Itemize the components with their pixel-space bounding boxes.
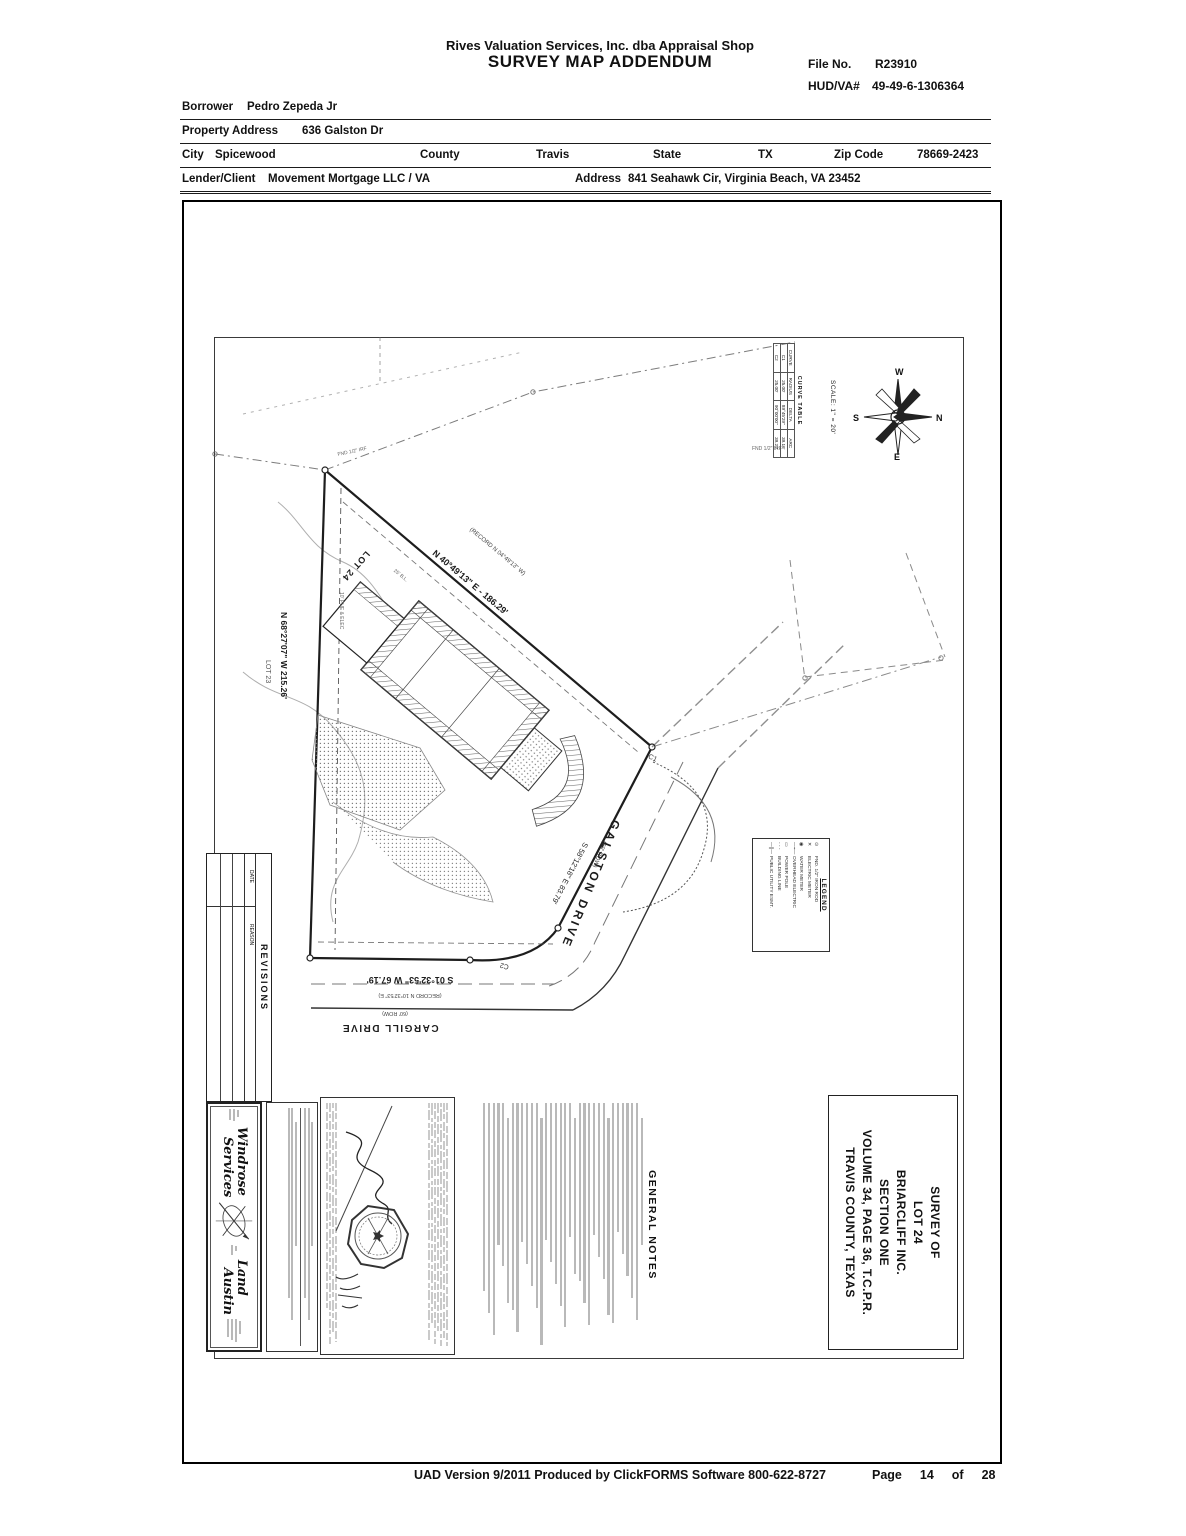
- curve-col-radius: RADIUS: [788, 372, 795, 401]
- legend-symbol: ◉: [797, 842, 804, 856]
- illegible-text-line: [507, 1118, 509, 1303]
- illegible-text-line: [295, 1122, 297, 1246]
- curve-c2-radius: 25.00': [774, 372, 781, 401]
- legend-label: POWER POLE: [783, 856, 788, 888]
- revisions-table: REVISIONS DATE REASON: [206, 853, 272, 1102]
- legend-label: ELECTRIC METER: [806, 856, 811, 898]
- illegible-text-line: [540, 1118, 542, 1345]
- borrower-value: Pedro Zepeda Jr: [247, 96, 337, 118]
- illegible-text-line: [622, 1103, 624, 1254]
- illegible-text-line: [569, 1103, 571, 1237]
- surveyor-signature: [346, 1132, 392, 1224]
- illegible-text-line: [626, 1103, 628, 1276]
- revisions-date-col: DATE: [245, 870, 256, 883]
- job-info-text: [304, 1108, 313, 1346]
- legend-symbol: —⌁—: [789, 842, 796, 856]
- illegible-text-line: [502, 1103, 504, 1266]
- illegible-text-line: [612, 1103, 614, 1323]
- surveyor-address-text: [228, 1109, 241, 1123]
- property-address-label: Property Address: [182, 120, 278, 142]
- footer-software-line: UAD Version 9/2011 Produced by ClickFORM…: [340, 1468, 900, 1482]
- illegible-text-line: [227, 1319, 229, 1337]
- legend-label: OVERHEAD ELECTRIC: [791, 856, 796, 908]
- footer-page-total: 28: [982, 1468, 996, 1482]
- illegible-text-line: [555, 1103, 557, 1284]
- hud-va-label: HUD/VA#: [808, 79, 860, 93]
- illegible-text-line: [512, 1103, 514, 1310]
- illegible-text-line: [235, 1319, 237, 1342]
- illegible-text-line: [521, 1103, 523, 1242]
- illegible-text-line: [291, 1108, 293, 1320]
- curve-c2-arc: 39.27': [774, 429, 781, 458]
- subject-info-form: Borrower Pedro Zepeda Jr Property Addres…: [180, 96, 991, 194]
- revisions-reason-col: REASON: [245, 924, 256, 945]
- file-no-value: R23910: [875, 57, 917, 71]
- surveyor-address-text: [226, 1319, 242, 1345]
- legend-label: FND. 1/2" IRON ROD: [813, 856, 818, 902]
- bearing-south-record: (RECORD N 10°32'53" E): [352, 992, 468, 998]
- illegible-text-line: [231, 1319, 233, 1340]
- legend-label: BUILDING LINE: [776, 856, 781, 891]
- curve-row-c2: C2 25.00' 90°00'00" 39.27': [774, 344, 781, 458]
- illegible-text-line: [536, 1103, 538, 1308]
- title-line-lot: LOT 24: [912, 1201, 926, 1244]
- certification-content: [324, 1098, 454, 1351]
- zip-label: Zip Code: [834, 144, 883, 166]
- illegible-text-line: [239, 1321, 241, 1335]
- illegible-text-line: [583, 1103, 585, 1303]
- job-info-block: [266, 1102, 318, 1352]
- certification-block: [320, 1097, 455, 1355]
- footer-page-number: 14: [920, 1468, 934, 1482]
- job-info-text: [288, 1108, 297, 1346]
- legend-item: —∥—PUBLIC UTILITY ESMT.: [767, 842, 774, 948]
- illegible-text-line: [588, 1103, 590, 1325]
- illegible-text-line: [497, 1103, 499, 1245]
- compass-west: W: [895, 367, 904, 377]
- surveyor-name-line: Services: [220, 1127, 234, 1198]
- illegible-text-line: [231, 1245, 233, 1254]
- borrower-label: Borrower: [182, 96, 233, 118]
- illegible-text-line: [483, 1103, 485, 1291]
- general-notes-title: GENERAL NOTES: [646, 1103, 658, 1347]
- revisions-title: REVISIONS: [255, 854, 271, 1101]
- legend-box: LEGEND ⊙FND. 1/2" IRON ROD ✕ELECTRIC MET…: [752, 838, 830, 952]
- compass-east: E: [894, 452, 900, 460]
- legend-symbol: ▭: [782, 842, 789, 856]
- surveyor-logo-block: Windrose Services Land Austin: [206, 1102, 262, 1352]
- curve-col-delta: DELTA: [788, 401, 795, 430]
- scale-note: SCALE: 1" = 20': [829, 380, 836, 434]
- illegible-text-line: [617, 1103, 619, 1232]
- revisions-rule: [220, 854, 221, 1101]
- surveyor-name-windrose: Windrose Services: [220, 1127, 247, 1198]
- illegible-text-line: [636, 1103, 638, 1320]
- street-cargill-row: (60' ROW): [355, 1010, 435, 1016]
- title-line-volume: VOLUME 34, PAGE 36, T.C.P.R.: [861, 1130, 875, 1315]
- general-notes-text: [483, 1103, 643, 1347]
- lender-label: Lender/Client: [182, 168, 255, 190]
- county-label: County: [420, 144, 460, 166]
- illegible-text-line: [235, 1246, 237, 1251]
- footer-of-label: of: [952, 1468, 964, 1482]
- lender-address-value: 841 Seahawk Cir, Virginia Beach, VA 2345…: [628, 168, 860, 190]
- bearing-west: N 68°27'07" W 215.26': [279, 612, 289, 699]
- legend-item: —⌁—OVERHEAD ELECTRIC: [789, 842, 796, 948]
- state-label: State: [653, 144, 681, 166]
- borrower-row: Borrower Pedro Zepeda Jr: [180, 96, 991, 120]
- title-line-section: SECTION ONE: [878, 1179, 892, 1266]
- surveyor-name-line: Windrose: [234, 1127, 248, 1198]
- footer-page-label: Page: [872, 1468, 902, 1482]
- compass-rose-icon: W N E S: [852, 365, 944, 460]
- legend-item: ✕ELECTRIC METER: [804, 842, 811, 948]
- property-address-value: 636 Galston Dr: [302, 120, 383, 142]
- illegible-text-line: [233, 1109, 235, 1121]
- survey-title-block: SURVEY OF LOT 24 BRIARCLIFF INC. SECTION…: [828, 1095, 958, 1350]
- hud-va-value: 49-49-6-1306364: [872, 79, 964, 93]
- county-value: Travis: [536, 144, 569, 166]
- file-no-label: File No.: [808, 57, 851, 71]
- state-value: TX: [758, 144, 773, 166]
- property-address-row: Property Address 636 Galston Dr: [180, 120, 991, 144]
- legend-item: ◉WATER METER: [797, 842, 804, 948]
- zip-value: 78669-2423: [917, 144, 978, 166]
- label-pue: 10' PUE & ELEC: [338, 592, 344, 629]
- label-lot-23: LOT 23: [264, 660, 271, 683]
- illegible-text-line: [288, 1108, 290, 1298]
- illegible-text-line: [579, 1103, 581, 1281]
- curve-c1-delta: 89°45'29": [781, 401, 788, 430]
- legend-label: PUBLIC UTILITY ESMT.: [768, 856, 773, 908]
- illegible-text-line: [229, 1109, 231, 1120]
- illegible-text-line: [531, 1103, 533, 1286]
- illegible-text-line: [488, 1103, 490, 1313]
- illegible-text-line: [237, 1110, 239, 1117]
- compass-south: S: [853, 413, 859, 423]
- general-notes-block: GENERAL NOTES: [434, 1097, 660, 1353]
- illegible-text-line: [574, 1118, 576, 1274]
- curve-col-curve: CURVE: [788, 344, 795, 373]
- illegible-text-line: [550, 1103, 552, 1262]
- legend-symbol: —∥—: [767, 842, 774, 856]
- surveyor-name-line: Land: [234, 1260, 248, 1315]
- curve-c1-arc: 39.16': [781, 429, 788, 458]
- illegible-text-line: [631, 1103, 633, 1298]
- legend-symbol: ✕: [804, 842, 811, 856]
- job-info-divider: [300, 1108, 301, 1346]
- bearing-south: S 01°32'53" W 67.19': [345, 975, 475, 985]
- title-line-county: TRAVIS COUNTY, TEXAS: [844, 1147, 858, 1297]
- revisions-rule: [232, 854, 233, 1101]
- city-value: Spicewood: [215, 144, 276, 166]
- illegible-text-line: [545, 1103, 547, 1240]
- illegible-text-line: [560, 1103, 562, 1306]
- illegible-text-line: [493, 1103, 495, 1335]
- footer-page-indicator: Page14of28: [872, 1468, 1014, 1482]
- surveyor-address-text: [229, 1245, 238, 1255]
- illegible-text-line: [603, 1103, 605, 1279]
- curve-c1-radius: 25.00': [781, 372, 788, 401]
- lender-row: Lender/Client Movement Mortgage LLC / VA…: [180, 168, 991, 194]
- illegible-text-line: [593, 1103, 595, 1235]
- city-state-row: City Spicewood County Travis State TX Zi…: [180, 144, 991, 168]
- illegible-text-line: [564, 1103, 566, 1327]
- legend-item: ▭POWER POLE: [782, 842, 789, 948]
- illegible-text-line: [598, 1103, 600, 1257]
- curve-table: CURVE TABLE CURVE RADIUS DELTA ARC C1 25…: [746, 343, 802, 458]
- lender-value: Movement Mortgage LLC / VA: [268, 168, 430, 190]
- surveyor-name-line: Austin: [220, 1260, 234, 1315]
- curve-row-c1: C1 25.00' 89°45'29" 39.16': [781, 344, 788, 458]
- curve-c1-id: C1: [781, 344, 788, 373]
- city-label: City: [182, 144, 204, 166]
- illegible-text-line: [607, 1118, 609, 1316]
- legend-item: - - -BUILDING LINE: [774, 842, 781, 948]
- survey-map-addendum-page: Rives Valuation Services, Inc. dba Appra…: [0, 0, 1186, 1536]
- compass-north: N: [936, 413, 943, 423]
- illegible-text-line: [308, 1108, 310, 1320]
- legend-symbol: ⊙: [812, 842, 819, 856]
- title-line-survey-of: SURVEY OF: [929, 1186, 943, 1259]
- illegible-text-line: [311, 1122, 313, 1246]
- legend-symbol: - - -: [774, 842, 781, 856]
- title-line-subdivision: BRIARCLIFF INC.: [895, 1170, 909, 1275]
- legend-item: ⊙FND. 1/2" IRON ROD: [812, 842, 819, 948]
- surveyor-name-land-austin: Land Austin: [220, 1260, 247, 1315]
- revisions-header: DATE REASON: [244, 854, 256, 1101]
- logo-compass-icon: [211, 1201, 257, 1241]
- lender-address-label: Address: [575, 168, 621, 190]
- legend-title: LEGEND: [820, 842, 827, 948]
- street-cargill-drive: CARGILL DRIVE: [330, 1022, 450, 1033]
- company-name: Rives Valuation Services, Inc. dba Appra…: [250, 38, 950, 53]
- surveyor-seal-icon: [348, 1206, 408, 1268]
- illegible-text-line: [517, 1103, 519, 1332]
- signature-date: [336, 1274, 362, 1308]
- illegible-text-line: [641, 1118, 643, 1245]
- legend-label: WATER METER: [798, 856, 803, 891]
- curve-table-title: CURVE TABLE: [796, 343, 802, 458]
- illegible-text-line: [526, 1103, 528, 1264]
- curve-col-arc: ARC: [788, 429, 795, 458]
- curve-c2-id: C2: [774, 344, 781, 373]
- curve-c2-delta: 90°00'00": [774, 401, 781, 430]
- illegible-text-line: [304, 1108, 306, 1298]
